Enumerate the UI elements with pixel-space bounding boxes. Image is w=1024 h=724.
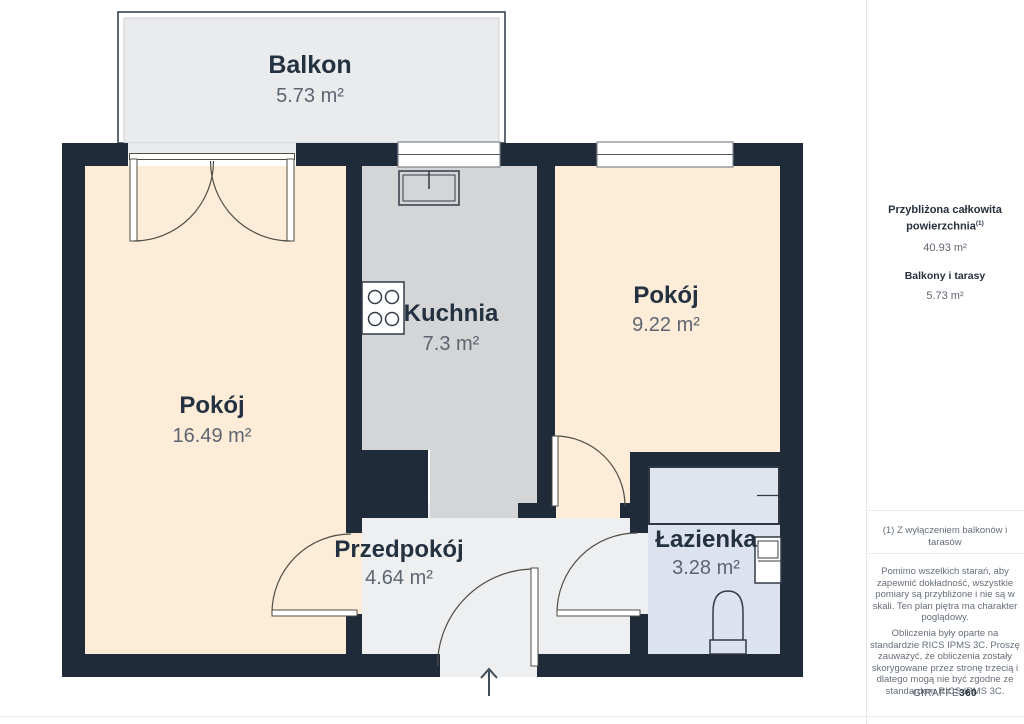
giraffe360-logo: GIRAFFE360 [866,688,1024,699]
room-left-label: Pokój [179,392,244,419]
disclaimer-accuracy: Pomimo wszelkich starań, aby zapewnić do… [870,566,1020,624]
balconies-value: 5.73 m² [866,290,1024,302]
balcony-floor [124,18,499,143]
room-right-area: 9.22 m² [632,314,700,336]
bathroom-door-gap [630,533,648,614]
total-area-title-line2: powierzchnia [906,221,976,233]
hallway-label: Przedpokój [334,536,463,563]
page-bottom-rule [0,716,1024,717]
total-area-title-line1: Przybliżona całkowita [888,204,1002,216]
balconies-title: Balkony i tarasy [866,270,1024,282]
room-left-area: 16.49 m² [173,425,252,447]
sidebar: Przybliżona całkowita powierzchnia(1) 40… [866,0,1024,724]
disclaimer-standard: Obliczenia były oparte na standardzie RI… [870,628,1020,697]
balcony-area: 5.73 m² [276,85,344,107]
sidebar-rule-top [866,510,1024,511]
kitchen-label: Kuchnia [404,300,499,327]
toilet [710,591,746,654]
kitchen-window [398,142,500,167]
total-area-block: Przybliżona całkowita powierzchnia(1) 40… [866,203,1024,302]
stove [362,282,404,334]
bathroom-label: Łazienka [655,526,757,553]
room-right-window [597,142,733,167]
room-right-door-gap [556,503,620,518]
footnote-marker: (1) [976,220,984,227]
kitchen-area: 7.3 m² [423,333,480,355]
total-area-value: 40.93 m² [866,242,1024,254]
floorplan-page: { "plan": { "rooms": [ {"name": "Balkon"… [0,0,1024,724]
brand-number: 360 [959,688,977,699]
kitchen-sink [399,171,459,205]
footnote-text: (1) Z wyłączeniem balkonów i tarasów [870,525,1020,548]
total-area-title: Przybliżona całkowita powierzchnia(1) [866,203,1024,234]
bathroom-sink [755,537,781,583]
room-right-label: Pokój [633,282,698,309]
balcony-label: Balkon [268,51,351,79]
hallway-area: 4.64 m² [365,567,433,589]
bathroom-area: 3.28 m² [672,557,740,579]
bathtub [649,467,779,524]
brand-name: GIRAFFE [913,688,959,699]
sidebar-rule-bottom [866,553,1024,554]
